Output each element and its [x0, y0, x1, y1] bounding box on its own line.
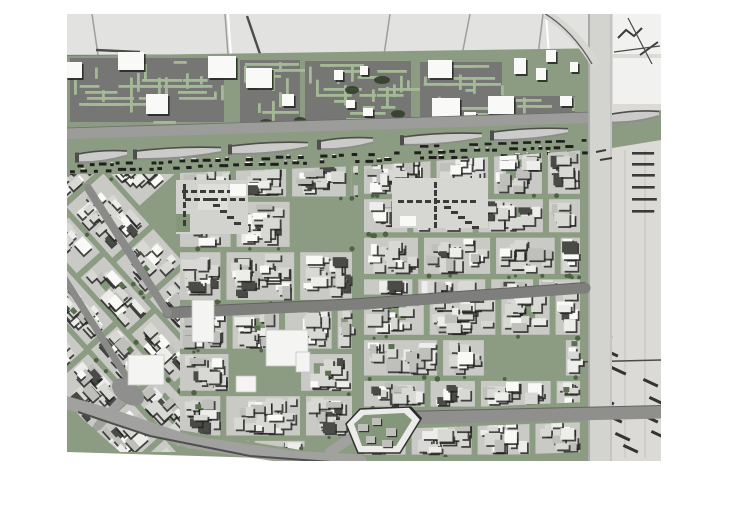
- building: [40, 350, 57, 368]
- building: [399, 307, 413, 316]
- building: [15, 189, 29, 203]
- tree: [27, 222, 35, 230]
- city-block: [0, 191, 29, 251]
- building: [244, 341, 256, 346]
- stall-roof: [385, 157, 389, 158]
- building: [496, 208, 508, 219]
- building: [450, 165, 461, 174]
- garden-path: [262, 111, 299, 114]
- building-shadow: [0, 229, 10, 245]
- building: [282, 286, 290, 299]
- city-block: [300, 252, 352, 300]
- stall-building: [565, 145, 573, 148]
- building-shadow: [72, 498, 87, 513]
- building: [428, 280, 435, 292]
- building: [391, 318, 397, 329]
- stall-building: [215, 159, 220, 162]
- building: [0, 210, 1, 228]
- building: [155, 467, 169, 480]
- building: [393, 171, 407, 178]
- building: [440, 242, 448, 252]
- stall-building: [246, 158, 253, 161]
- building: [13, 368, 32, 387]
- garden-path: [74, 81, 77, 95]
- building: [489, 220, 504, 229]
- garden-path: [163, 85, 185, 88]
- building-shadow: [0, 210, 7, 225]
- building: [516, 171, 530, 179]
- building: [240, 408, 246, 415]
- building: [32, 346, 41, 355]
- building-shadow: [2, 371, 18, 387]
- garden-path: [130, 78, 133, 92]
- stall-building: [486, 149, 490, 152]
- tree: [42, 378, 47, 383]
- building-shadow: [38, 255, 51, 268]
- stall-roof: [486, 148, 488, 149]
- building-shadow: [96, 472, 115, 491]
- building: [4, 292, 20, 308]
- stall-roof: [439, 150, 443, 151]
- building: [446, 258, 454, 271]
- building: [0, 292, 14, 307]
- stall-building: [130, 168, 136, 171]
- cross-block-building: [452, 200, 458, 203]
- building: [7, 382, 25, 400]
- building: [368, 256, 380, 263]
- block-base: [2, 169, 65, 234]
- building-shadow: [56, 418, 67, 429]
- city-block: [0, 169, 65, 237]
- building: [382, 440, 392, 447]
- building-shadow-mark: [632, 163, 654, 166]
- building-shadow: [19, 379, 37, 397]
- garden-path: [334, 100, 344, 103]
- building: [36, 471, 48, 483]
- building: [0, 221, 4, 240]
- stall-roof: [246, 157, 250, 158]
- building-shadow: [50, 510, 62, 516]
- stall-building: [420, 157, 424, 160]
- garden-building: [546, 50, 556, 62]
- building: [104, 483, 119, 497]
- building: [0, 294, 5, 311]
- building: [99, 467, 117, 485]
- building: [557, 213, 570, 226]
- arterial-road-surface: [588, 14, 612, 461]
- building: [45, 360, 57, 373]
- building-shadow: [54, 499, 63, 508]
- stall-building: [186, 166, 191, 169]
- compound-building: [183, 193, 186, 199]
- building: [54, 297, 63, 306]
- building-shadow: [81, 507, 93, 516]
- stall-building: [292, 161, 299, 164]
- building-shadow: [13, 384, 28, 398]
- stall-building: [451, 156, 457, 159]
- stall-building: [511, 142, 518, 145]
- building-shadow: [47, 293, 66, 312]
- tree: [383, 232, 388, 237]
- building-shadow: [32, 203, 47, 217]
- tree-cluster: [391, 110, 405, 118]
- stall-building: [139, 168, 142, 171]
- garden-building: [334, 70, 343, 80]
- building-shadow: [113, 479, 124, 490]
- building: [0, 398, 8, 415]
- building: [47, 419, 60, 432]
- compound-building: [230, 198, 236, 201]
- building: [26, 438, 43, 455]
- building: [36, 452, 49, 464]
- green-pocket: [255, 326, 261, 331]
- building: [39, 321, 53, 336]
- building-shadow: [155, 458, 167, 470]
- garden-path: [179, 97, 214, 100]
- building: [0, 471, 10, 487]
- building-shadow: [49, 503, 63, 516]
- building: [256, 205, 273, 210]
- stall-building: [538, 147, 542, 150]
- building: [76, 510, 86, 516]
- stall-building: [150, 168, 154, 171]
- garden-path: [258, 103, 261, 113]
- building-shadow: [40, 352, 57, 370]
- garden-path: [459, 75, 462, 90]
- building-shadow: [6, 382, 22, 398]
- building: [0, 272, 15, 288]
- cross-block-building: [472, 226, 479, 229]
- building: [267, 415, 282, 421]
- tree: [191, 390, 197, 396]
- building-shadow: [0, 302, 14, 318]
- building-shadow: [149, 459, 161, 471]
- building-shadow: [36, 254, 50, 268]
- building: [31, 199, 48, 216]
- building: [438, 429, 453, 441]
- building: [244, 423, 254, 430]
- city-block: [479, 199, 543, 232]
- garden-building: [246, 68, 272, 88]
- stall-building: [429, 156, 437, 159]
- building: [29, 235, 41, 247]
- cross-block-building: [458, 216, 465, 219]
- stall-roof: [287, 155, 290, 156]
- tree: [277, 247, 280, 250]
- garden-building: [560, 96, 572, 106]
- building: [108, 471, 126, 489]
- building: [5, 451, 24, 470]
- stall-roof: [320, 159, 323, 160]
- building: [371, 244, 377, 255]
- building-shadow: [24, 189, 40, 206]
- garden-building: [363, 108, 373, 116]
- building: [0, 282, 6, 292]
- building-shadow: [20, 240, 39, 259]
- cross-block-building: [407, 200, 413, 203]
- building-shadow: [2, 221, 19, 238]
- building-shadow: [25, 454, 38, 468]
- stall-building: [523, 141, 531, 144]
- tree: [427, 273, 432, 278]
- building-shadow: [22, 207, 31, 216]
- building-shadow: [22, 242, 38, 258]
- cross-block-building: [416, 200, 422, 203]
- building-shadow: [0, 306, 10, 324]
- building: [202, 399, 214, 409]
- city-block: [0, 457, 38, 516]
- stall-building: [126, 161, 133, 164]
- building-shadow: [48, 496, 60, 508]
- garden-path: [536, 105, 552, 108]
- compound-building: [213, 204, 220, 207]
- building: [497, 185, 507, 191]
- building-shadow: [0, 200, 5, 216]
- building: [110, 474, 124, 489]
- building: [314, 169, 323, 176]
- building: [50, 507, 62, 516]
- garden-building: [346, 100, 355, 108]
- building-shadow: [47, 422, 60, 435]
- building-shadow: [45, 362, 57, 375]
- building: [306, 256, 323, 264]
- building-shadow: [50, 339, 63, 352]
- building: [500, 161, 515, 169]
- building-shadow: [26, 386, 38, 398]
- building-shadow: [19, 328, 36, 344]
- building-shadow: [0, 412, 3, 430]
- garden-path: [377, 70, 407, 73]
- building-shadow: [9, 249, 23, 263]
- stall-building: [394, 151, 399, 154]
- garden-building: [536, 68, 546, 80]
- stall-building: [198, 165, 203, 168]
- city-block: [496, 238, 555, 278]
- building: [0, 215, 6, 230]
- building-shadow: [0, 297, 5, 314]
- stall-building: [179, 159, 185, 162]
- building: [158, 455, 174, 471]
- garden-building: [146, 94, 168, 114]
- building: [259, 181, 270, 188]
- building: [514, 242, 527, 250]
- building: [487, 426, 498, 431]
- building-shadow: [85, 505, 100, 516]
- cross-block-building: [451, 211, 458, 214]
- building-shadow: [37, 443, 52, 458]
- stall-roof: [259, 162, 263, 163]
- building-shadow: [82, 497, 99, 514]
- stall-building: [298, 156, 304, 159]
- cross-block-white-building: [400, 216, 416, 226]
- tree: [52, 310, 57, 315]
- building-shadow: [154, 470, 168, 483]
- building: [23, 377, 36, 391]
- building: [263, 218, 280, 229]
- tree: [573, 375, 577, 379]
- garden-building: [570, 62, 578, 72]
- building-shadow: [13, 185, 31, 204]
- building: [47, 169, 61, 183]
- compound-building: [227, 216, 234, 219]
- building-shadow: [144, 455, 159, 470]
- building-shadow: [15, 500, 28, 513]
- building: [27, 186, 42, 202]
- building: [532, 318, 546, 325]
- building: [55, 285, 69, 300]
- building-shadow: [36, 315, 54, 333]
- building: [450, 344, 458, 353]
- stall-building: [262, 157, 271, 160]
- building: [307, 402, 319, 413]
- building: [42, 315, 53, 326]
- building: [22, 240, 38, 256]
- building: [460, 304, 471, 310]
- tree: [575, 335, 580, 340]
- building-shadow: [120, 505, 132, 516]
- building: [96, 470, 115, 489]
- building-shadow: [0, 417, 4, 429]
- building: [85, 503, 100, 516]
- building: [13, 382, 28, 396]
- green-pocket: [54, 493, 62, 501]
- building: [0, 303, 11, 321]
- building: [416, 392, 423, 403]
- building-shadow: [35, 454, 48, 466]
- building-shadow: [9, 281, 20, 292]
- garden-path: [351, 67, 354, 82]
- stall-building: [355, 160, 359, 163]
- building: [0, 198, 5, 214]
- building: [387, 281, 402, 291]
- stall-roof: [225, 157, 228, 158]
- building: [53, 276, 64, 288]
- block-base: [0, 194, 25, 248]
- tree: [448, 274, 452, 278]
- building: [22, 290, 31, 300]
- building: [50, 501, 64, 515]
- building: [9, 370, 19, 381]
- building: [386, 428, 396, 436]
- stall-building: [203, 159, 211, 162]
- tree: [196, 349, 199, 352]
- building: [461, 323, 470, 329]
- garden-path: [316, 80, 319, 97]
- tree: [8, 200, 16, 208]
- building: [120, 502, 132, 514]
- building-shadow: [27, 189, 42, 205]
- building-shadow: [45, 340, 58, 353]
- building-shadow: [46, 351, 64, 370]
- tree: [375, 193, 380, 198]
- building: [0, 216, 11, 231]
- building: [40, 212, 54, 225]
- building: [53, 235, 65, 247]
- tree: [372, 233, 377, 238]
- city-block: [110, 485, 155, 516]
- building: [20, 471, 36, 487]
- garden-path: [130, 101, 133, 113]
- building: [439, 283, 446, 290]
- courtyard-green: [123, 496, 137, 510]
- building: [42, 418, 54, 430]
- city-block: [443, 340, 484, 379]
- garden-path: [85, 91, 117, 94]
- block-base: [113, 488, 145, 516]
- building: [191, 284, 204, 291]
- stall-roof: [526, 153, 528, 154]
- building: [21, 237, 40, 256]
- building: [181, 260, 197, 269]
- building: [43, 347, 58, 363]
- garden-path: [279, 92, 282, 107]
- building: [199, 238, 215, 246]
- building-shadow: [29, 237, 41, 249]
- stall-building: [259, 163, 266, 166]
- garden-building: [66, 62, 82, 78]
- building-shadow: [24, 261, 36, 273]
- building: [0, 226, 10, 242]
- stall-building: [320, 155, 327, 158]
- building-shadow: [54, 411, 66, 423]
- building: [285, 413, 293, 419]
- building-shadow: [11, 415, 22, 426]
- building: [37, 219, 47, 229]
- building: [446, 323, 461, 333]
- compound-building: [182, 190, 188, 193]
- stall-building: [365, 160, 373, 163]
- building: [25, 448, 41, 465]
- building: [309, 331, 325, 338]
- berm-cap: [75, 153, 79, 163]
- building-shadow: [44, 171, 59, 187]
- building-shadow: [0, 213, 1, 231]
- building: [26, 456, 40, 471]
- stall-building: [535, 141, 541, 144]
- stall-roof: [539, 146, 541, 147]
- stall-roof: [216, 158, 219, 159]
- building: [342, 322, 350, 335]
- building-shadow: [38, 202, 49, 213]
- stall-roof: [111, 162, 113, 163]
- building: [12, 492, 21, 501]
- building: [45, 338, 58, 351]
- garden-path: [323, 64, 335, 67]
- building-shadow: [0, 218, 11, 233]
- building: [207, 372, 220, 384]
- building-shadow: [107, 477, 121, 491]
- building-shadow: [27, 328, 44, 346]
- building: [50, 336, 63, 349]
- building: [22, 236, 34, 248]
- city-block: [364, 279, 412, 295]
- building-shadow: [33, 252, 46, 265]
- building-shadow: [141, 460, 152, 471]
- building: [37, 206, 51, 220]
- tree: [349, 246, 354, 251]
- building: [385, 249, 392, 261]
- garden-path: [154, 121, 176, 124]
- building-shadow: [46, 172, 60, 186]
- building-shadow: [31, 202, 48, 219]
- building-shadow: [36, 257, 47, 268]
- building-shadow: [6, 461, 16, 471]
- building: [38, 470, 46, 478]
- building: [37, 251, 51, 265]
- stall-building: [492, 149, 497, 152]
- cross-block-building: [444, 206, 451, 209]
- building-shadow: [42, 317, 53, 328]
